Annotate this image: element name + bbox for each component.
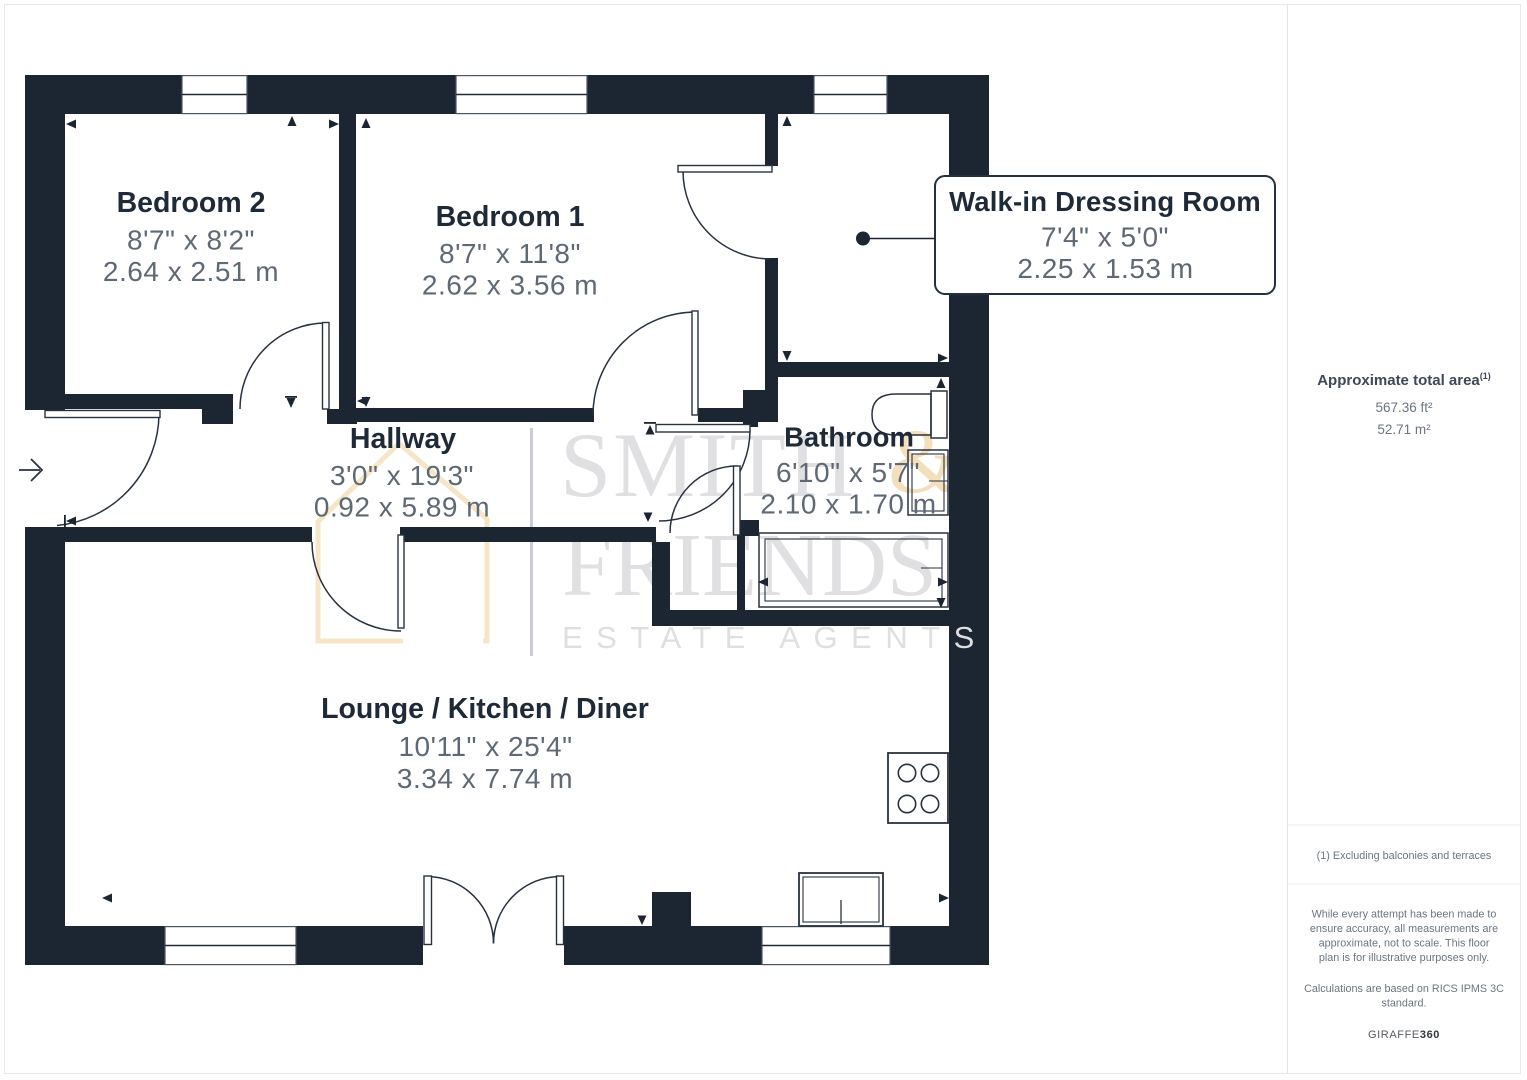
svg-text:0.92 x 5.89 m: 0.92 x 5.89 m — [314, 492, 490, 523]
svg-text:(1) Excluding balconies and te: (1) Excluding balconies and terraces — [1317, 850, 1492, 862]
svg-text:Approximate total area(1): Approximate total area(1) — [1317, 371, 1491, 389]
svg-text:approximate, not to scale. Thi: approximate, not to scale. This floor — [1319, 938, 1490, 950]
svg-text:Calculations are based on RICS: Calculations are based on RICS IPMS 3C — [1304, 983, 1504, 995]
svg-text:While every attempt has been m: While every attempt has been made to — [1312, 909, 1497, 921]
svg-text:2.62 x 3.56 m: 2.62 x 3.56 m — [422, 270, 598, 301]
svg-text:2.64 x 2.51 m: 2.64 x 2.51 m — [103, 256, 279, 287]
svg-text:2.10 x 1.70 m: 2.10 x 1.70 m — [760, 489, 936, 520]
svg-text:GIRAFFE360: GIRAFFE360 — [1368, 1029, 1440, 1041]
svg-text:3'0" x 19'3": 3'0" x 19'3" — [330, 460, 474, 491]
svg-text:Bedroom 2: Bedroom 2 — [117, 187, 266, 219]
svg-text:Bedroom 1: Bedroom 1 — [436, 201, 585, 233]
svg-text:10'11" x 25'4": 10'11" x 25'4" — [398, 731, 572, 762]
svg-text:2.25 x 1.53 m: 2.25 x 1.53 m — [1017, 253, 1193, 284]
svg-text:Lounge / Kitchen / Diner: Lounge / Kitchen / Diner — [321, 693, 649, 725]
svg-text:567.36 ft²: 567.36 ft² — [1375, 400, 1433, 415]
svg-text:ESTATE AGENTS: ESTATE AGENTS — [562, 620, 988, 655]
svg-text:standard.: standard. — [1381, 998, 1426, 1010]
svg-text:Walk-in Dressing Room: Walk-in Dressing Room — [949, 186, 1261, 217]
svg-text:8'7" x 11'8": 8'7" x 11'8" — [439, 238, 581, 269]
svg-text:plan is for illustrative purpo: plan is for illustrative purposes only. — [1319, 952, 1489, 964]
svg-text:Hallway: Hallway — [350, 423, 456, 455]
svg-text:3.34 x 7.74 m: 3.34 x 7.74 m — [397, 763, 573, 794]
svg-text:8'7" x 8'2": 8'7" x 8'2" — [127, 225, 255, 256]
svg-text:ensure accuracy, all measureme: ensure accuracy, all measurements are — [1310, 923, 1498, 935]
svg-text:6'10" x 5'7": 6'10" x 5'7" — [776, 457, 920, 488]
svg-text:Bathroom: Bathroom — [784, 422, 914, 453]
svg-text:52.71 m²: 52.71 m² — [1377, 422, 1431, 437]
svg-text:7'4" x 5'0": 7'4" x 5'0" — [1041, 222, 1169, 253]
